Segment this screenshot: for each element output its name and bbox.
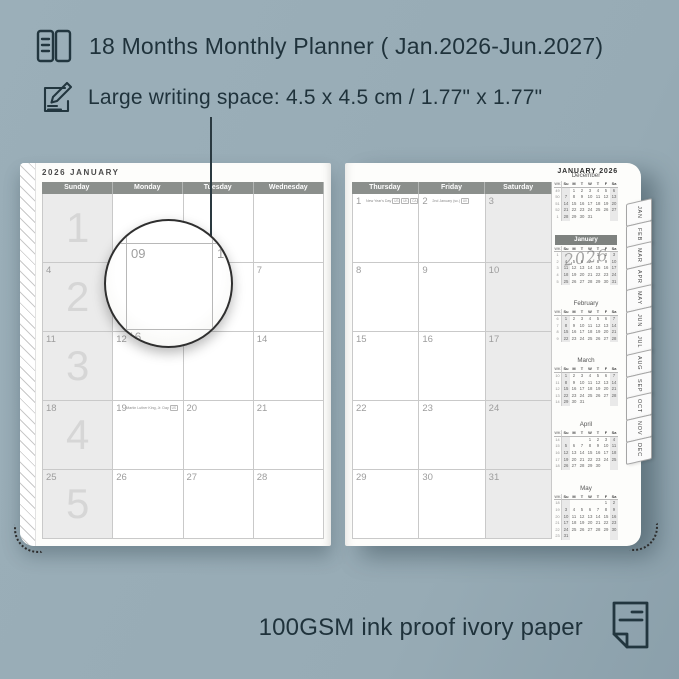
mini-calendar-cell: 25 (594, 207, 602, 214)
mini-calendar-cell: 2 (610, 500, 618, 507)
mini-calendar-cell: 14 (562, 201, 570, 208)
mini-calendar-cell: 6 (610, 188, 618, 195)
month-tab-label: JAN (636, 206, 642, 219)
mini-calendar-cell: 5 (594, 373, 602, 380)
mini-calendar-cell (594, 500, 602, 507)
month-tab-label: AUG (636, 356, 642, 370)
mini-calendar-cell: 27 (610, 207, 618, 214)
mini-calendar-cell: 11 (554, 380, 562, 387)
feature-bullet-planner: 18 Months Monthly Planner ( Jan.2026-Jun… (34, 26, 603, 66)
mini-calendar-cell: 16 (554, 450, 562, 457)
mini-calendar-cell: 14 (578, 450, 586, 457)
mini-calendar-cell: 13 (570, 450, 578, 457)
mini-calendar-day-header: T (578, 309, 586, 316)
footer-feature: 100GSM ink proof ivory paper (259, 596, 657, 659)
sidebar-mini-calendar: MarchWKSuMTWTFSa101234567118910111213141… (554, 356, 618, 406)
mini-calendar-cell: 15 (586, 450, 594, 457)
mini-calendar-cell: 11 (594, 194, 602, 201)
mini-calendar-cell: 1 (562, 316, 570, 323)
feature-text-planner: 18 Months Monthly Planner ( Jan.2026-Jun… (89, 33, 603, 60)
mini-calendar-cell: 23 (554, 533, 562, 540)
mini-calendar-cell: 21 (562, 207, 570, 214)
date-number: 17 (489, 334, 500, 345)
mini-calendar-cell (602, 214, 610, 221)
sidebar-mini-calendar: AprilWKSuMTWTFSa141234155678910111612131… (554, 420, 618, 470)
mini-calendar-cell: 26 (602, 207, 610, 214)
mini-calendar-cell: 6 (602, 373, 610, 380)
mini-calendar-cell: 22 (562, 393, 570, 400)
mini-calendar-cell: 14 (554, 437, 562, 444)
mini-calendar-cell: 22 (602, 520, 610, 527)
mini-calendar-cell: 14 (610, 323, 618, 330)
mini-calendar-cell: 24 (578, 393, 586, 400)
mini-calendar-cell (586, 399, 594, 406)
mini-calendar-cell: 15 (554, 443, 562, 450)
mini-calendar-cell: 26 (570, 279, 578, 286)
mini-calendar-cell: 17 (578, 386, 586, 393)
page-edge-hatch (20, 163, 36, 546)
mini-calendar-cell: 7 (594, 507, 602, 514)
date-number: 10 (489, 265, 500, 276)
magnified-date: 09 (131, 246, 145, 261)
date-cell: 7 (254, 263, 324, 332)
day-header-cell: Sunday (42, 182, 113, 194)
event-label: 2nd January (sc.) (432, 199, 460, 203)
mini-calendar-cell: 16 (570, 329, 578, 336)
mini-calendar-cell: 31 (562, 533, 570, 540)
mini-calendar-day-header: Sa (610, 309, 618, 316)
mini-calendar-cell: 49 (554, 188, 562, 195)
mini-calendar-cell: 10 (554, 373, 562, 380)
event-entry: Martin Luther King, Jr. DayUS (126, 405, 178, 411)
mini-calendar-cell: 15 (602, 514, 610, 521)
mini-calendar-day-header: T (578, 366, 586, 373)
mini-calendar-cell (602, 463, 610, 470)
mini-calendar-cell: 2 (594, 437, 602, 444)
date-cell: 28 (254, 470, 324, 539)
mini-calendar-cell: 21 (578, 457, 586, 464)
mini-calendar-cell (594, 214, 602, 221)
mini-calendar-day-header: WK (554, 494, 562, 501)
month-tab-label: MAR (636, 248, 642, 263)
mini-calendar-cell: 31 (610, 279, 618, 286)
mini-calendar-cell: 27 (578, 279, 586, 286)
date-cell: 418 (43, 401, 113, 470)
mini-calendar-cell: 4 (594, 188, 602, 195)
date-number: 29 (356, 472, 367, 483)
mini-calendar-cell: 5 (602, 188, 610, 195)
mini-calendar-cell: 23 (570, 393, 578, 400)
date-number: 11 (46, 334, 56, 345)
mini-calendar-cell: 29 (562, 399, 570, 406)
mini-calendar-cell: 1 (602, 500, 610, 507)
mini-calendar-cell (570, 533, 578, 540)
mini-calendar-day-header: M (570, 309, 578, 316)
mini-calendar-cell (594, 399, 602, 406)
mini-calendar-day-header: Sa (610, 430, 618, 437)
mini-calendar-cell: 18 (562, 272, 570, 279)
date-cell: 17 (486, 332, 552, 401)
mini-calendar-cell: 3 (586, 188, 594, 195)
left-page-title: 2026 JANUARY (42, 168, 120, 177)
date-cell: 22nd January (sc.)UK (419, 194, 485, 263)
mini-calendar-cell: 19 (562, 457, 570, 464)
mini-calendar-cell (562, 437, 570, 444)
mini-calendar-cell: 26 (578, 527, 586, 534)
date-cell: 8 (353, 263, 419, 332)
mini-calendar-cell: 10 (578, 380, 586, 387)
date-number: 25 (46, 472, 57, 483)
month-tab-label: MAY (636, 292, 642, 306)
mini-calendar-cell: 19 (578, 520, 586, 527)
date-number: 22 (356, 403, 367, 414)
mini-calendar-cell: 4 (586, 316, 594, 323)
magnified-grid-line (212, 221, 213, 346)
month-tab-label: NOV (636, 421, 642, 435)
date-cell: 21 (254, 401, 324, 470)
mini-calendar-cell: 10 (602, 443, 610, 450)
mini-calendar-cell: 6 (586, 507, 594, 514)
sidebar-title: JANUARY 2026 (554, 168, 618, 175)
mini-calendar-day-header: Su (562, 366, 570, 373)
mini-calendar-cell: 9 (594, 443, 602, 450)
mini-calendar-cell: 31 (578, 399, 586, 406)
mini-calendar-cell: 8 (554, 329, 562, 336)
reference-sidebar: JANUARY 2026 DecemberWKSuMTWTFSa49123456… (554, 168, 618, 540)
mini-calendar-cell (610, 214, 618, 221)
mini-calendar-cell: 7 (610, 316, 618, 323)
month-tab-label: OCT (636, 400, 642, 414)
mini-calendar-cell: 13 (610, 194, 618, 201)
mini-calendar-cell: 29 (594, 279, 602, 286)
mini-calendar-cell: 29 (602, 527, 610, 534)
mini-calendar-cell: 25 (586, 393, 594, 400)
mini-calendar-cell: 25 (586, 336, 594, 343)
magnified-grid-line (126, 221, 127, 346)
date-number: 19 (116, 403, 127, 414)
date-number: 4 (46, 265, 51, 276)
mini-calendar-cell: 20 (586, 520, 594, 527)
day-header-cell: Friday (419, 182, 486, 194)
day-header-cell: Wednesday (254, 182, 325, 194)
callout-line (210, 117, 212, 237)
mini-calendar-cell: 6 (570, 443, 578, 450)
date-cell: 24 (43, 263, 113, 332)
mini-calendar-cell: 25 (570, 527, 578, 534)
date-number: 8 (356, 265, 361, 276)
date-number: 7 (257, 265, 262, 276)
mini-calendar-cell: 7 (562, 194, 570, 201)
mini-calendar-cell (610, 463, 618, 470)
feature-text-writing-space: Large writing space: 4.5 x 4.5 cm / 1.77… (88, 86, 542, 110)
mini-calendar-cell (578, 500, 586, 507)
date-number: 15 (356, 334, 367, 345)
mini-calendar-cell: 30 (610, 527, 618, 534)
mini-calendar-cell: 5 (554, 279, 562, 286)
mini-calendar-cell: 17 (578, 329, 586, 336)
mini-calendar-cell: 12 (594, 323, 602, 330)
date-number: 14 (257, 334, 268, 345)
mini-calendar-cell: 1 (586, 437, 594, 444)
mini-calendar-cell: 27 (602, 393, 610, 400)
mini-calendar-cell: 9 (570, 380, 578, 387)
mini-calendar-cell: 8 (586, 443, 594, 450)
mini-calendar-cell: 5 (594, 316, 602, 323)
mini-calendar-cell: 23 (570, 336, 578, 343)
mini-calendar-cell: 19 (594, 386, 602, 393)
mini-calendar-cell: 21 (610, 386, 618, 393)
mini-calendar-grid: WKSuMTWTFSa14123415567891011161213141516… (554, 430, 618, 470)
mini-calendar-cell: 23 (594, 457, 602, 464)
month-tab-label: FEB (636, 227, 642, 240)
mini-calendar-cell: 7 (578, 443, 586, 450)
magnified-date-below: 16 (128, 330, 141, 344)
magnified-grid-line (106, 243, 231, 244)
mini-calendar-cell: 30 (570, 399, 578, 406)
mini-calendar-day-header: M (570, 430, 578, 437)
date-number: 20 (187, 403, 198, 414)
mini-calendar-cell: 28 (610, 393, 618, 400)
mini-calendar-day-header: W (586, 309, 594, 316)
mini-calendar-cell (586, 533, 594, 540)
mini-calendar-cell: 51 (554, 201, 562, 208)
mini-calendar-cell: 21 (594, 520, 602, 527)
mini-calendar-grid: WKSuMTWTFSa10123456711891011121314121516… (554, 366, 618, 406)
mini-calendar-cell: 20 (578, 272, 586, 279)
mini-calendar-cell: 8 (602, 507, 610, 514)
mini-calendar-cell: 9 (610, 507, 618, 514)
mini-calendar-cell: 13 (586, 514, 594, 521)
mini-calendar-cell: 29 (586, 463, 594, 470)
date-number: 30 (422, 472, 433, 483)
mini-calendar-cell: 17 (586, 201, 594, 208)
mini-calendars: DecemberWKSuMTWTFSa491234565078910111213… (554, 171, 618, 540)
mini-calendar-cell: 24 (610, 272, 618, 279)
date-cell (254, 194, 324, 263)
date-number: 27 (187, 472, 198, 483)
sidebar-mini-calendar: MayWKSuMTWTFSa18121934567892010111213141… (554, 484, 618, 540)
mini-calendar-cell: 6 (602, 316, 610, 323)
mini-calendar-cell: 4 (610, 437, 618, 444)
date-cell: 22 (353, 401, 419, 470)
mini-calendar-cell: 26 (594, 393, 602, 400)
mini-calendar-cell: 27 (586, 527, 594, 534)
date-cell: 10 (486, 263, 552, 332)
mini-calendar-cell: 21 (554, 520, 562, 527)
mini-calendar-cell: 11 (586, 323, 594, 330)
mini-calendar-cell: 7 (554, 323, 562, 330)
right-page: ThursdayFridaySaturday 1New Year's DayUS… (345, 163, 641, 546)
event-badge: US (170, 405, 178, 411)
mini-calendar-cell: 17 (554, 457, 562, 464)
mini-calendar-cell: 18 (586, 386, 594, 393)
mini-calendar-cell: 16 (610, 514, 618, 521)
mini-calendar-day-header: T (578, 430, 586, 437)
mini-calendar-cell: 19 (570, 272, 578, 279)
mini-calendar-day-header: W (586, 430, 594, 437)
mini-calendar-cell: 8 (562, 323, 570, 330)
mini-calendar-cell: 12 (602, 194, 610, 201)
mini-calendar-day-header: M (570, 494, 578, 501)
mini-calendar-grid: WKSuMTWTFSa49123456507891011121351141516… (554, 181, 618, 221)
mini-calendar-cell: 12 (554, 386, 562, 393)
mini-calendar-cell: 19 (554, 507, 562, 514)
week-number-watermark: 1 (43, 194, 112, 262)
mini-calendar-day-header: Sa (610, 181, 618, 188)
mini-calendar-day-header: F (602, 494, 610, 501)
mini-calendar-title: May (554, 484, 618, 493)
mini-calendar-cell: 21 (610, 329, 618, 336)
mini-calendar-day-header: M (570, 366, 578, 373)
mini-calendar-cell: 13 (602, 323, 610, 330)
date-cell: 24 (486, 401, 552, 470)
date-cell: 9 (419, 263, 485, 332)
magnifier-circle: 09 10 12 16 (104, 219, 233, 348)
footer-caption: 100GSM ink proof ivory paper (259, 614, 583, 642)
date-number: 18 (46, 403, 57, 414)
mini-calendar-cell: 23 (602, 272, 610, 279)
mini-calendar-cell: 11 (610, 443, 618, 450)
mini-calendar-title: February (554, 299, 618, 308)
mini-calendar-day-header: Sa (610, 366, 618, 373)
mini-calendar-cell: 18 (594, 201, 602, 208)
mini-calendar-cell: 10 (562, 514, 570, 521)
day-header-cell: Thursday (352, 182, 419, 194)
mini-calendar-cell: 28 (586, 279, 594, 286)
mini-calendar-cell: 4 (570, 507, 578, 514)
month-tab-label: DEC (636, 443, 642, 457)
mini-calendar-day-header: T (594, 366, 602, 373)
date-number: 26 (116, 472, 127, 483)
date-number: 23 (422, 403, 433, 414)
mini-calendar-cell: 27 (602, 336, 610, 343)
mini-calendar-cell: 30 (594, 463, 602, 470)
mini-calendar-cell: 24 (602, 457, 610, 464)
mini-calendar-cell: 26 (594, 336, 602, 343)
week-number-watermark: 2 (43, 263, 112, 331)
mini-calendar-cell: 28 (578, 463, 586, 470)
pencil-writing-icon (37, 80, 73, 116)
date-cell: 15 (353, 332, 419, 401)
planner-spread: 2026 JANUARY SundayMondayTuesdayWednesda… (20, 163, 641, 546)
mini-calendar-cell: 3 (602, 437, 610, 444)
mini-calendar-cell: 16 (578, 201, 586, 208)
mini-calendar-grid: WKSuMTWTFSa18121934567892010111213141516… (554, 494, 618, 540)
mini-calendar-cell: 1 (570, 188, 578, 195)
date-cell: 19Martin Luther King, Jr. DayUS (113, 401, 183, 470)
mini-calendar-cell: 9 (570, 323, 578, 330)
mini-calendar-day-header: T (594, 181, 602, 188)
magnified-grid-line (106, 329, 231, 330)
mini-calendar-cell: 28 (562, 214, 570, 221)
mini-calendar-cell: 4 (586, 373, 594, 380)
mini-calendar-cell (562, 500, 570, 507)
mini-calendar-cell: 15 (562, 386, 570, 393)
event-entry: 2nd January (sc.)UK (432, 198, 469, 204)
mini-calendar-cell: 20 (602, 386, 610, 393)
mini-calendar-cell: 8 (562, 380, 570, 387)
date-cell: 3 (486, 194, 552, 263)
date-number: 3 (489, 196, 494, 207)
mini-calendar-day-header: T (578, 494, 586, 501)
mini-calendar-cell: 13 (554, 393, 562, 400)
event-badge: UK (401, 198, 409, 204)
mini-calendar-title: January (555, 235, 617, 245)
date-number: 28 (257, 472, 268, 483)
mini-calendar-cell: 22 (594, 272, 602, 279)
mini-calendar-cell: 1 (554, 214, 562, 221)
date-number: 9 (422, 265, 427, 276)
mini-calendar-day-header: WK (554, 430, 562, 437)
mini-calendar-cell: 16 (570, 386, 578, 393)
mini-calendar-grid: WKSuMTWTFSa61234567789101112131481516171… (554, 309, 618, 342)
mini-calendar-cell: 5 (578, 507, 586, 514)
mini-calendar-cell: 3 (578, 373, 586, 380)
mini-calendar-cell: 1 (562, 373, 570, 380)
mini-calendar-cell (570, 500, 578, 507)
mini-calendar-cell: 2 (578, 188, 586, 195)
mini-calendar-day-header: Su (562, 309, 570, 316)
month-tabs: JANFEBMARAPRMAYJUNJULAUGSEPOCTNOVDEC (626, 202, 652, 461)
product-image: { "colors": { "background": "#97abb5", "… (0, 0, 679, 679)
mini-calendar-cell: 15 (562, 329, 570, 336)
date-cell: 20 (184, 401, 254, 470)
date-number: 1 (356, 196, 361, 207)
mini-calendar-cell: 9 (578, 194, 586, 201)
mini-calendar-cell: 19 (594, 329, 602, 336)
right-date-grid: 1New Year's DayUSUKCAAUNZ22nd January (s… (352, 194, 552, 539)
mini-calendar-cell: 18 (570, 520, 578, 527)
mini-calendar-cell: 14 (594, 514, 602, 521)
mini-calendar-cell: 13 (602, 380, 610, 387)
date-cell: 525 (43, 470, 113, 539)
mini-calendar-cell: 19 (602, 201, 610, 208)
sidebar-mini-calendar: DecemberWKSuMTWTFSa491234565078910111213… (554, 171, 618, 221)
mini-calendar-cell: 16 (602, 265, 610, 272)
mini-calendar-day-header: T (594, 309, 602, 316)
mini-calendar-cell: 14 (554, 399, 562, 406)
month-tab-label: JUN (636, 314, 642, 327)
mini-calendar-cell: 2 (570, 316, 578, 323)
mini-calendar-cell: 24 (562, 527, 570, 534)
mini-calendar-day-header: W (586, 494, 594, 501)
underlying-date: 12 (114, 332, 123, 341)
mini-calendar-cell: 17 (562, 520, 570, 527)
mini-calendar-cell (602, 533, 610, 540)
date-cell: 16 (419, 332, 485, 401)
mini-calendar-cell (602, 399, 610, 406)
mini-calendar-cell: 12 (594, 380, 602, 387)
magnified-date-right: 10 (217, 246, 231, 261)
mini-calendar-cell: 18 (586, 329, 594, 336)
month-tab-label: SEP (636, 378, 642, 391)
mini-calendar-cell (578, 533, 586, 540)
mini-calendar-cell (594, 533, 602, 540)
date-number: 2 (422, 196, 427, 207)
mini-calendar-cell (578, 437, 586, 444)
mini-calendar-cell (586, 500, 594, 507)
mini-calendar-cell: 18 (554, 500, 562, 507)
feature-bullet-writing-space: Large writing space: 4.5 x 4.5 cm / 1.77… (37, 80, 542, 116)
day-header-cell: Saturday (485, 182, 552, 194)
mini-calendar-cell: 22 (570, 207, 578, 214)
mini-calendar-cell: 30 (578, 214, 586, 221)
date-cell: 23 (419, 401, 485, 470)
mini-calendar-cell: 52 (554, 207, 562, 214)
event-badge: CA (410, 198, 418, 204)
mini-calendar-cell: 24 (586, 207, 594, 214)
mini-calendar-cell: 21 (586, 272, 594, 279)
